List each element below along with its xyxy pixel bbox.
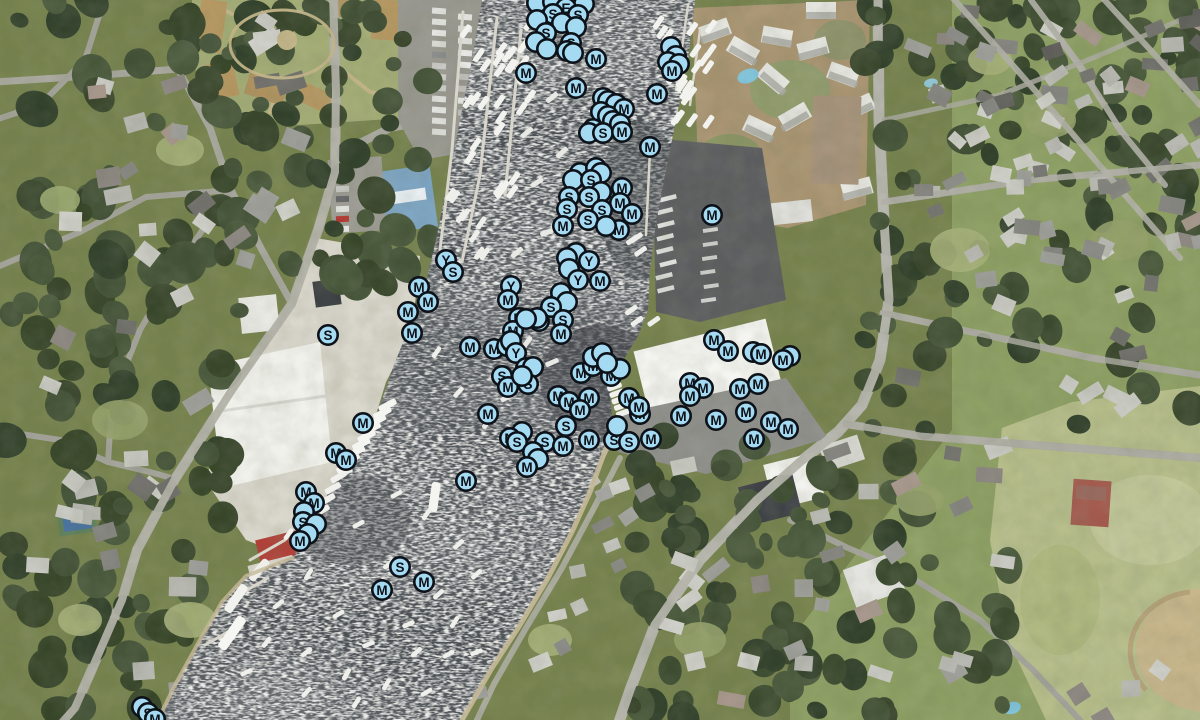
svg-text:M: M [755,347,766,362]
svg-text:M: M [645,432,656,447]
svg-text:S: S [598,126,607,141]
svg-text:M: M [149,712,160,720]
svg-text:M: M [574,403,585,418]
svg-text:M: M [520,66,531,81]
svg-text:M: M [590,52,601,67]
svg-text:M: M [666,64,677,79]
svg-text:M: M [675,409,686,424]
svg-text:M: M [594,274,605,289]
svg-text:M: M [521,460,532,475]
svg-text:M: M [777,353,788,368]
svg-text:S: S [395,560,404,575]
svg-text:M: M [684,389,695,404]
svg-text:S: S [562,202,571,217]
svg-text:M: M [752,377,763,392]
svg-text:M: M [710,413,721,428]
svg-text:M: M [464,340,475,355]
svg-text:Y: Y [573,273,582,288]
svg-text:M: M [502,293,513,308]
svg-text:S: S [584,190,593,205]
svg-text:M: M [406,326,417,341]
svg-text:M: M [422,295,433,310]
svg-text:M: M [357,416,368,431]
svg-text:S: S [583,213,592,228]
svg-text:M: M [706,208,717,223]
svg-text:S: S [448,265,457,280]
svg-text:M: M [734,382,745,397]
svg-text:M: M [616,125,627,140]
svg-text:M: M [722,344,733,359]
svg-text:S: S [546,300,555,315]
svg-text:M: M [708,333,719,348]
svg-text:M: M [376,583,387,598]
svg-text:M: M [626,207,637,222]
svg-text:M: M [502,380,513,395]
svg-text:M: M [740,405,751,420]
svg-text:M: M [633,400,644,415]
svg-text:M: M [765,415,776,430]
svg-text:S: S [323,328,332,343]
svg-text:M: M [557,219,568,234]
svg-text:M: M [782,422,793,437]
svg-text:M: M [402,305,413,320]
svg-text:S: S [624,435,633,450]
svg-text:M: M [570,81,581,96]
svg-text:M: M [340,453,351,468]
svg-text:M: M [294,534,305,549]
svg-text:M: M [482,407,493,422]
svg-text:Y: Y [511,346,520,361]
svg-text:S: S [561,419,570,434]
svg-text:Y: Y [584,254,593,269]
svg-text:M: M [418,575,429,590]
svg-text:M: M [460,474,471,489]
svg-text:S: S [512,435,521,450]
svg-text:M: M [651,87,662,102]
svg-text:M: M [557,439,568,454]
svg-text:M: M [583,433,594,448]
svg-text:M: M [555,327,566,342]
svg-text:M: M [748,432,759,447]
svg-text:M: M [644,140,655,155]
